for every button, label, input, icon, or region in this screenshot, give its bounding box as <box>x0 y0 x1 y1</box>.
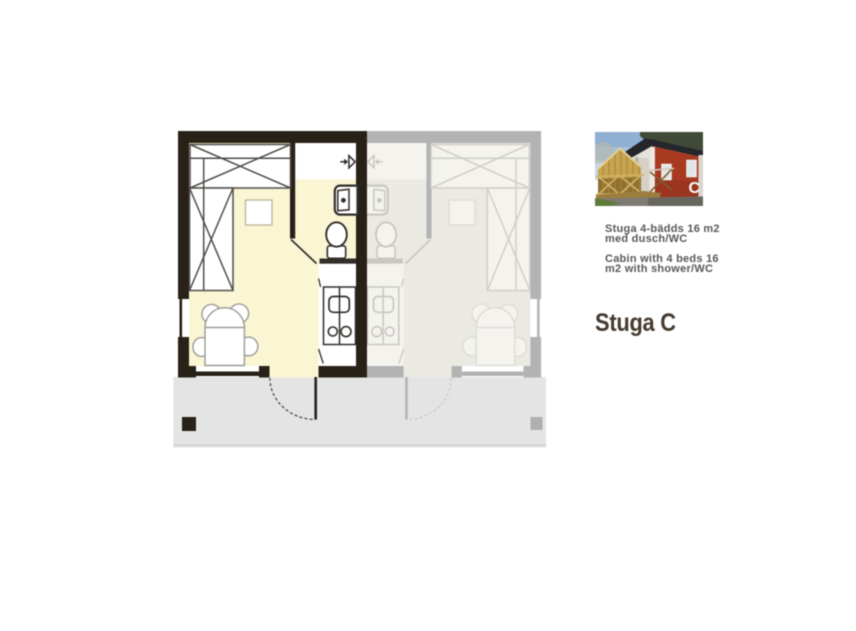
svg-text:C: C <box>689 180 701 197</box>
